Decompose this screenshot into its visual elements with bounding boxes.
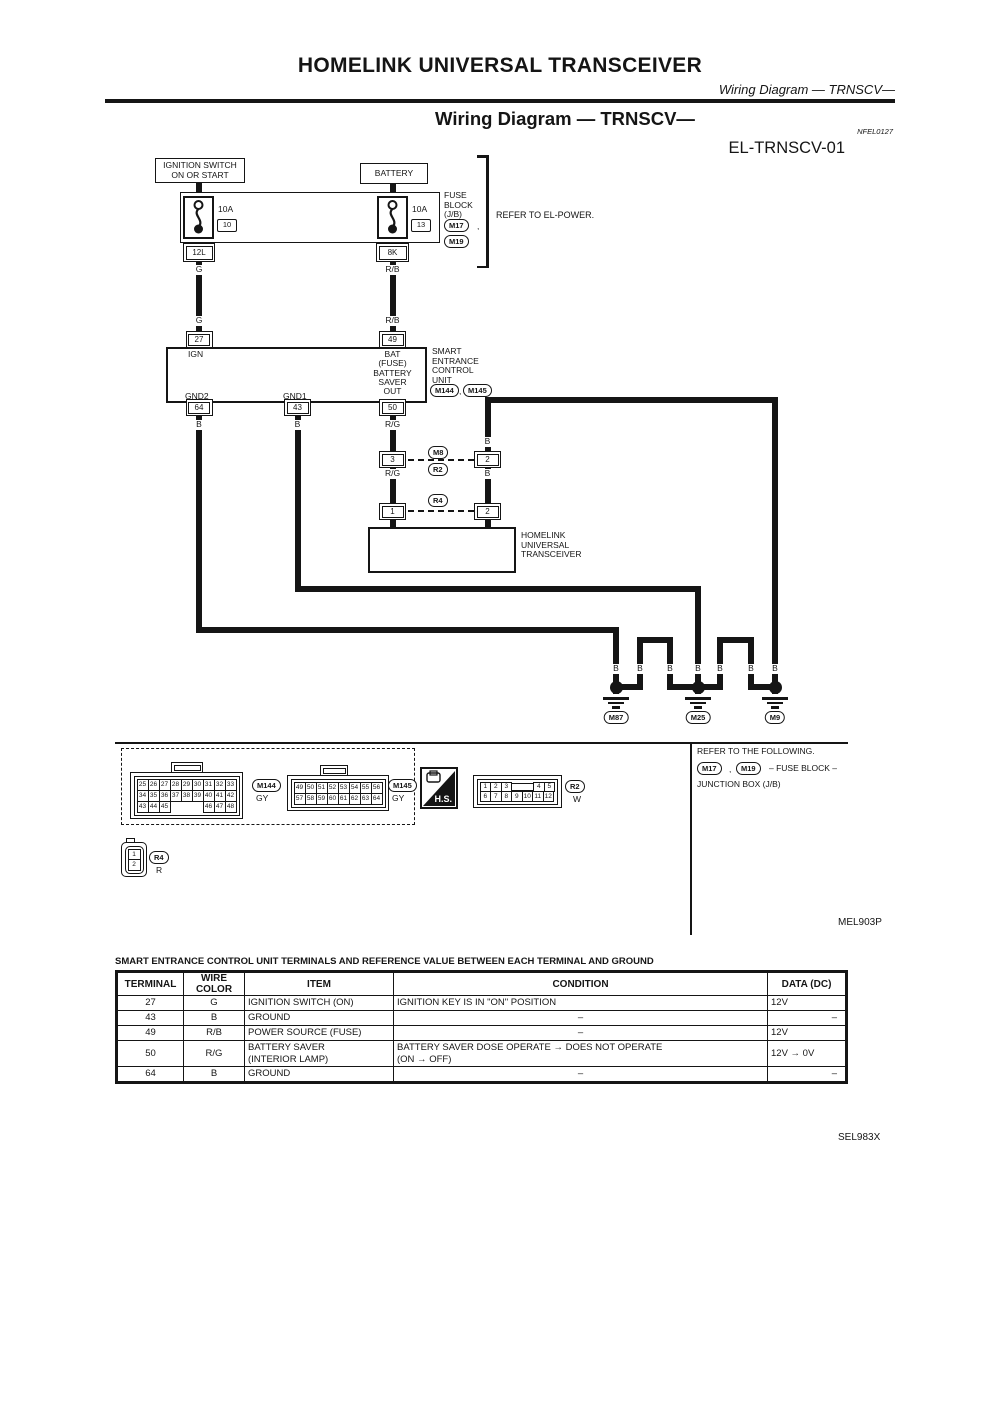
cell-item: IGNITION SWITCH (ON) — [245, 996, 394, 1011]
wire-label-b: B — [194, 420, 204, 430]
connector-ref-m145: M145 — [388, 779, 417, 792]
cell-wire-color: R/B — [184, 1025, 245, 1040]
table-row: 49R/BPOWER SOURCE (FUSE)–12V — [117, 1025, 847, 1040]
connector-ref-m19: M19 — [444, 235, 469, 248]
bracket — [477, 266, 486, 269]
notes-line3: JUNCTION BOX (J/B) — [697, 780, 781, 790]
secu-pin-label-ign: IGN — [188, 350, 203, 360]
transceiver-box — [368, 527, 516, 573]
table-row: 27GIGNITION SWITCH (ON)IGNITION KEY IS I… — [117, 996, 847, 1011]
col-data: DATA (DC) — [768, 972, 847, 996]
cell-terminal: 50 — [117, 1040, 184, 1067]
wire-label-b: B — [635, 664, 645, 674]
table-row: 43BGROUND–– — [117, 1010, 847, 1025]
battery-box: BATTERY — [360, 163, 428, 184]
connector-dash — [408, 459, 474, 461]
table-row: 50R/GBATTERY SAVER(INTERIOR LAMP)BATTERY… — [117, 1040, 847, 1067]
connector-ref-r2: R2 — [565, 780, 585, 793]
cell-wire-color: B — [184, 1067, 245, 1083]
connector-dash — [408, 510, 474, 512]
fuse1-number: 10 — [217, 219, 237, 232]
ground-junction — [692, 681, 705, 694]
reference-table: TERMINAL WIRE COLOR ITEM CONDITION DATA … — [115, 970, 848, 1084]
notes-line1: REFER TO THE FOLLOWING. — [697, 747, 815, 757]
pin-45: 45 — [159, 801, 171, 813]
ground-ref-m87: M87 — [604, 711, 629, 724]
pin-12: 12 — [543, 791, 555, 802]
comma: , — [729, 765, 731, 775]
hs-label: H.S. — [434, 794, 452, 804]
terminal-43: 43 — [284, 399, 311, 416]
fuse1-rating: 10A — [218, 205, 233, 215]
cell-terminal: 64 — [117, 1067, 184, 1083]
ground-icon — [767, 702, 783, 705]
ground-ref-m25: M25 — [686, 711, 711, 724]
wire — [390, 184, 396, 192]
wire-label-rg: R/G — [383, 469, 402, 479]
table-header-row: TERMINAL WIRE COLOR ITEM CONDITION DATA … — [117, 972, 847, 996]
wire-label-b: B — [715, 664, 725, 674]
connector-r2: 123456789101112 — [473, 775, 562, 808]
cell-wire-color: B — [184, 1010, 245, 1025]
connector-ref-m17: M17 — [697, 762, 722, 775]
connector-m145: 49505152535455565758596061626364 — [287, 775, 389, 811]
col-item: ITEM — [245, 972, 394, 996]
comma: , — [477, 222, 479, 232]
connector-color: GY — [256, 794, 268, 804]
fuse2-number: 13 — [411, 219, 431, 232]
connector-color: GY — [392, 794, 404, 804]
wire-label-b: B — [665, 664, 675, 674]
ignition-switch-box: IGNITION SWITCH ON OR START — [155, 158, 245, 183]
page-subtitle: Wiring Diagram — TRNSCV— — [719, 82, 895, 97]
wire-b-ground — [772, 397, 778, 694]
wire — [390, 520, 396, 527]
ground-icon — [690, 702, 706, 705]
hs-view-icon: H.S. — [420, 767, 458, 809]
ground-icon — [762, 697, 788, 700]
table-title: SMART ENTRANCE CONTROL UNIT TERMINALS AN… — [115, 956, 654, 967]
cell-condition: IGNITION KEY IS IN "ON" POSITION — [394, 996, 768, 1011]
terminal-8K: 8K — [376, 243, 409, 262]
fuse-block-label: FUSE BLOCK (J/B) — [444, 191, 473, 220]
pin-48: 48 — [225, 801, 237, 813]
inline-pin-2: 2 — [474, 451, 501, 468]
cell-condition: – — [394, 1010, 768, 1025]
connector-ref-r4: R4 — [149, 851, 169, 864]
cell-item: BATTERY SAVER(INTERIOR LAMP) — [245, 1040, 394, 1067]
ground-icon — [603, 697, 629, 700]
separator-line — [690, 742, 692, 935]
header-rule — [105, 99, 895, 103]
wire-label-b: B — [693, 664, 703, 674]
wire-label-b: B — [746, 664, 756, 674]
r4-pin-grid: 12 — [128, 849, 141, 871]
figure-code: MEL903P — [838, 917, 882, 928]
ground-icon — [608, 702, 624, 705]
cell-data: 12V → 0V — [768, 1040, 847, 1067]
terminal-49: 49 — [379, 331, 406, 348]
connector-ref-r4: R4 — [428, 494, 448, 507]
r4-pin-2: 2 — [474, 503, 501, 520]
cell-terminal: 43 — [117, 1010, 184, 1025]
fuse2-rating: 10A — [412, 205, 427, 215]
cell-item: GROUND — [245, 1067, 394, 1083]
secu-name: SMART ENTRANCE CONTROL UNIT — [432, 347, 479, 385]
fuse-icon — [183, 196, 214, 239]
bracket — [477, 155, 486, 158]
wire-gnd1 — [695, 586, 701, 694]
cell-data: 12V — [768, 1025, 847, 1040]
ref-code: NFEL0127 — [857, 127, 893, 136]
wire-label-rb: R/B — [383, 316, 401, 326]
section-title: Wiring Diagram — TRNSCV— — [230, 108, 900, 130]
cell-terminal: 49 — [117, 1025, 184, 1040]
col-wire-color: WIRE COLOR — [184, 972, 245, 996]
connector-ref-m144: M144 — [252, 779, 281, 792]
wire-label-b: B — [483, 437, 493, 447]
ground-junction — [610, 681, 623, 694]
wire — [485, 520, 491, 527]
col-condition: CONDITION — [394, 972, 768, 996]
wire-gnd2 — [196, 627, 619, 633]
pin-64: 64 — [371, 793, 383, 805]
cell-item: GROUND — [245, 1010, 394, 1025]
notes-line2: – FUSE BLOCK – — [769, 764, 837, 774]
connector-ref-r2: R2 — [428, 463, 448, 476]
cell-terminal: 27 — [117, 996, 184, 1011]
wire-label-g: G — [194, 316, 205, 326]
wire — [196, 183, 202, 192]
connector-ref-m145: M145 — [463, 384, 492, 397]
r2-pin-grid: 123456789101112 — [480, 782, 556, 802]
inline-pin-3: 3 — [379, 451, 406, 468]
wire-label-b: B — [611, 664, 621, 674]
sheet-code: SEL983X — [838, 1132, 880, 1143]
table-row: 64BGROUND–– — [117, 1067, 847, 1083]
ground-ref-m9: M9 — [765, 711, 785, 724]
transceiver-name: HOMELINK UNIVERSAL TRANSCEIVER — [521, 531, 581, 560]
wire-label-b: B — [483, 469, 493, 479]
cell-data: – — [768, 1067, 847, 1083]
cell-data: – — [768, 1010, 847, 1025]
wire-b-ground — [485, 397, 779, 403]
cell-item: POWER SOURCE (FUSE) — [245, 1025, 394, 1040]
terminal-12L: 12L — [183, 243, 215, 262]
connector-color: R — [156, 866, 162, 876]
cell-condition: – — [394, 1025, 768, 1040]
manual-page: HOMELINK UNIVERSAL TRANSCEIVER Wiring Di… — [0, 0, 1000, 1414]
r4-pin-1: 1 — [379, 503, 406, 520]
connector-ref-m19: M19 — [736, 762, 761, 775]
connector-ref-m17: M17 — [444, 219, 469, 232]
secu-pin-label-out: OUT — [384, 387, 402, 397]
cell-condition: – — [394, 1067, 768, 1083]
pin-2: 2 — [128, 859, 141, 871]
col-terminal: TERMINAL — [117, 972, 184, 996]
cell-wire-color: G — [184, 996, 245, 1011]
connector-r4: 12 — [121, 842, 147, 877]
ground-icon — [694, 706, 702, 709]
bracket — [486, 155, 489, 268]
refer-note: REFER TO EL-POWER. — [496, 210, 594, 220]
key-slot — [511, 783, 534, 791]
page-title: HOMELINK UNIVERSAL TRANSCEIVER — [0, 54, 1000, 78]
cell-data: 12V — [768, 996, 847, 1011]
ground-icon — [685, 697, 711, 700]
terminal-64: 64 — [186, 399, 213, 416]
wire-label-b: B — [293, 420, 303, 430]
wire-label-g: G — [194, 265, 205, 275]
separator-line — [115, 742, 848, 744]
connector-ref-m144: M144 — [430, 384, 459, 397]
terminal-27: 27 — [186, 331, 213, 348]
cell-condition: BATTERY SAVER DOSE OPERATE → DOES NOT OP… — [394, 1040, 768, 1067]
connector-color: W — [573, 795, 581, 805]
m145-pin-grid: 49505152535455565758596061626364 — [294, 782, 383, 805]
sheet-id: EL-TRNSCV-01 — [729, 139, 845, 158]
wire-label-b: B — [770, 664, 780, 674]
fuse-icon — [377, 196, 408, 239]
wire-gnd2 — [196, 416, 202, 633]
cell-wire-color: R/G — [184, 1040, 245, 1067]
wire-label-rg: R/G — [383, 420, 402, 430]
comma: , — [459, 387, 461, 397]
terminal-50: 50 — [379, 399, 406, 416]
connector-m144: 2526272829303132333435363738394041424344… — [130, 772, 243, 819]
ground-icon — [771, 706, 779, 709]
m144-pin-grid: 2526272829303132333435363738394041424344… — [137, 779, 237, 813]
connector-ref-m8: M8 — [428, 446, 448, 459]
ground-icon — [612, 706, 620, 709]
ground-junction — [769, 681, 782, 694]
wire-label-rb: R/B — [383, 265, 401, 275]
wire-gnd1 — [295, 586, 702, 592]
wire-gnd1 — [295, 416, 301, 592]
